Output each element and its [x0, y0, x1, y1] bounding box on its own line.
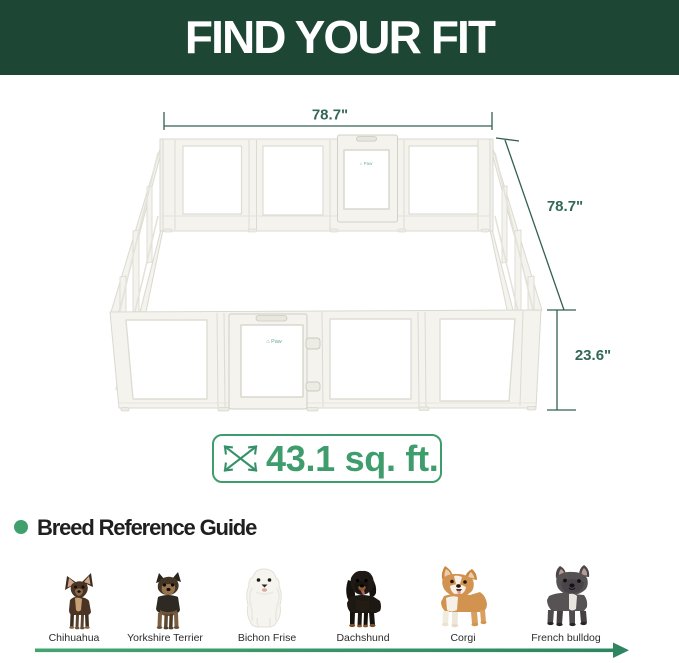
svg-text:78.7": 78.7": [312, 107, 348, 124]
svg-text:⌂ Paw: ⌂ Paw: [266, 339, 282, 345]
svg-text:78.7": 78.7": [547, 198, 583, 215]
svg-text:⌂ Paw: ⌂ Paw: [360, 161, 373, 166]
svg-text:23.6": 23.6": [575, 347, 611, 364]
